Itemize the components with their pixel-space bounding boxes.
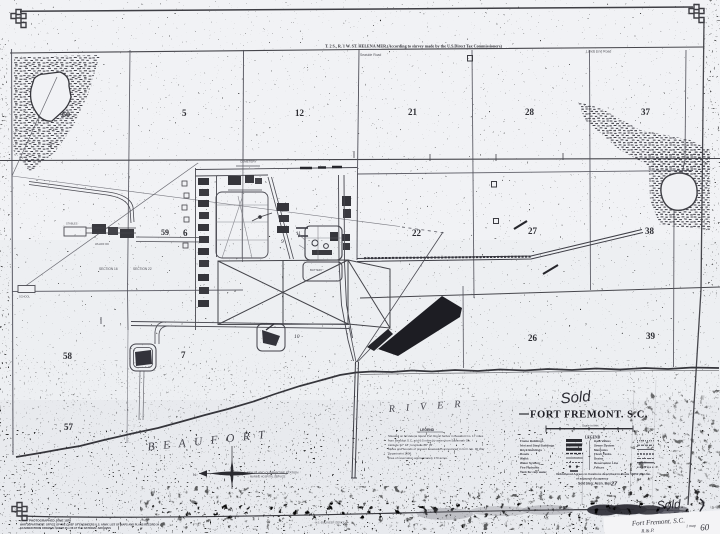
svg-text:WHARF RD: WHARF RD [95,242,109,246]
svg-text:37: 37 [641,107,651,117]
svg-text:28: 28 [525,107,535,117]
svg-text:9: 9 [281,239,284,245]
svg-text:Situated on St Helena Island P: Situated on St Helena Island Port Royal … [388,434,484,438]
svg-text:U.S. ENGINEER OFFICE: U.S. ENGINEER OFFICE [315,521,345,525]
svg-text:SCANNED FROM ORIGINAL SHEET 2: SCANNED FROM ORIGINAL SHEET 26 x 38 AT T… [20,526,111,530]
svg-text:R.&.P.: R.&.P. [640,529,654,534]
svg-text:Brick Buildings: Brick Buildings [520,448,542,452]
svg-text:Metes and bounds of present re: Metes and bounds of present reservation … [388,447,484,451]
svg-text:59: 59 [161,228,169,237]
svg-text:38: 38 [645,226,655,236]
svg-text:PHOTOGRAPHED JUNE 1878: PHOTOGRAPHED JUNE 1878 [29,519,71,523]
svg-text:Drains: Drains [594,457,604,461]
svg-text:Sold Neg. Accn. Box: Sold Neg. Accn. Box [578,482,611,486]
svg-text:Department 1906.: Department 1906. [388,452,412,456]
svg-text:1 map: 1 map [686,523,696,529]
svg-text:Fences: Fences [594,465,605,469]
svg-text:N: N [193,472,196,477]
svg-text:MARINE HOSPITAL SERVICE: MARINE HOSPITAL SERVICE [250,475,286,479]
svg-text:5: 5 [182,108,187,118]
svg-text:SECTION 16: SECTION 16 [99,267,118,271]
svg-text:Walks: Walks [520,457,529,461]
svg-text:21: 21 [408,107,418,117]
svg-text:STABLES: STABLES [66,222,78,226]
svg-text:SECTION 22: SECTION 22 [133,267,152,271]
svg-text:Tank for rain water: Tank for rain water [520,470,547,474]
svg-text:Scale in feet: Scale in feet [582,424,599,428]
svg-text:Sewer System: Sewer System [594,443,615,447]
svg-text:LEGEND: LEGEND [420,428,435,432]
svg-text:7: 7 [181,350,186,360]
svg-text:SEA ISLAND QUARANTINE STATION: SEA ISLAND QUARANTINE STATION [247,471,298,475]
svg-text:Gate Valves: Gate Valves [594,439,611,443]
svg-text:6: 6 [183,228,188,238]
svg-text:Fire Hydrants: Fire Hydrants [520,465,540,469]
svg-text:Frame Buildings: Frame Buildings [520,439,544,443]
svg-text:39: 39 [646,331,656,341]
svg-text:WAR DEPARTMENT: OFFICE OF THE: WAR DEPARTMENT: OFFICE OF THE CHIEF OF E… [20,523,160,527]
svg-text:27: 27 [528,226,538,236]
svg-text:Unbothered Agrees to locati: Unbothered Agrees to locations described… [556,472,651,476]
svg-text:Seaside Road: Seaside Road [360,53,381,57]
svg-text:BATTERY: BATTERY [310,268,323,272]
svg-text:Sold: Sold [560,388,592,408]
svg-text:of adjacent occupancy: of adjacent occupancy [576,476,609,480]
svg-text:Manholes: Manholes [594,448,608,452]
svg-text:27: 27 [610,482,618,488]
svg-text:Flush Tanks: Flush Tanks [594,452,612,456]
svg-text:Reservation Line: Reservation Line [594,461,619,465]
svg-text:CEMETERY: CEMETERY [240,160,257,164]
svg-text:Area of reservation approximat: Area of reservation approximately 170 ac… [388,456,448,460]
svg-text:FORT FREMONT. S.C.: FORT FREMONT. S.C. [530,410,648,421]
svg-text:SCHOOL: SCHOOL [19,295,31,299]
svg-text:from Beaufort S.C. and 6.5 mi: from Beaufort S.C. and 6.5 miles by wate… [388,438,471,442]
svg-text:60: 60 [700,522,710,533]
svg-text:58: 58 [63,351,73,361]
svg-text:T. 2 S., R. 1 W. ST. HELENA ME: T. 2 S., R. 1 W. ST. HELENA MER.(Accordi… [325,44,502,49]
svg-text:10: 10 [294,334,300,340]
svg-text:Iron and Steel Buildings: Iron and Steel Buildings [520,443,555,447]
svg-text:12: 12 [295,108,305,118]
svg-text:Sold.: Sold. [656,497,684,513]
svg-text:57: 57 [64,422,74,432]
svg-text:26: 26 [528,333,538,343]
svg-text:Roads: Roads [520,452,530,456]
svg-text:Latitude 32° 18′; longitude 80: Latitude 32° 18′; longitude 80° 35′. [388,443,434,447]
svg-text:Water System: Water System [520,461,540,465]
